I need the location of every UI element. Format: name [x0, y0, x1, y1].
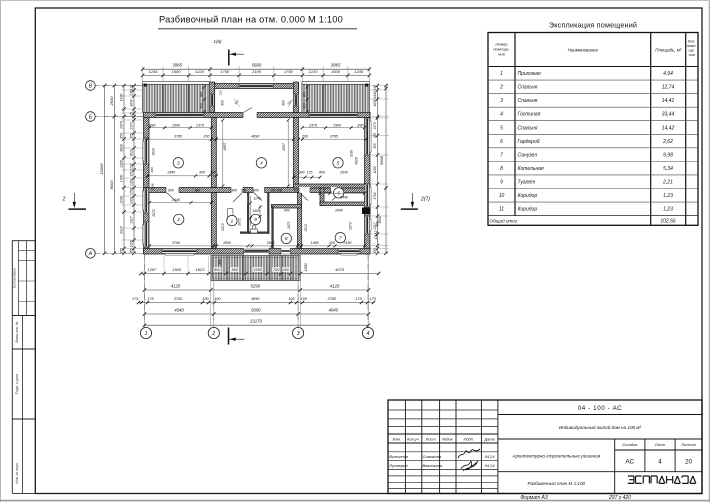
svg-text:3: 3 — [177, 160, 180, 165]
svg-text:Архитектурно-строительные реше: Архитектурно-строительные решения — [511, 454, 600, 459]
svg-text:1375: 1375 — [196, 123, 205, 127]
svg-text:4040: 4040 — [174, 307, 184, 312]
svg-text:3965: 3965 — [331, 63, 341, 68]
svg-text:900: 900 — [303, 103, 307, 109]
svg-text:ния: ния — [689, 53, 695, 57]
svg-text:Взам. инв. №: Взам. инв. № — [15, 321, 19, 342]
svg-text:2373: 2373 — [130, 122, 134, 130]
svg-text:Общий итог: Общий итог — [490, 218, 518, 224]
svg-text:Наименование: Наименование — [568, 48, 599, 53]
svg-text:Проверил: Проверил — [389, 463, 408, 468]
svg-text:14,42: 14,42 — [662, 125, 675, 131]
svg-text:1912: 1912 — [304, 224, 308, 232]
svg-text:1630: 1630 — [130, 99, 134, 106]
svg-text:800: 800 — [319, 170, 325, 174]
svg-text:100: 100 — [288, 297, 295, 301]
svg-text:14,41: 14,41 — [662, 98, 675, 104]
svg-text:355: 355 — [130, 133, 134, 139]
svg-text:Разбивочный план М 1:100: Разбивочный план М 1:100 — [528, 480, 586, 486]
svg-text:1006: 1006 — [151, 183, 155, 190]
svg-text:3765: 3765 — [174, 297, 183, 301]
svg-text:100: 100 — [214, 297, 221, 301]
svg-text:1585: 1585 — [253, 267, 263, 272]
svg-text:Листов: Листов — [680, 442, 696, 447]
svg-text:13170: 13170 — [250, 319, 263, 324]
svg-text:900: 900 — [231, 267, 238, 272]
svg-text:Изм.: Изм. — [393, 436, 401, 441]
svg-text:900: 900 — [282, 100, 286, 106]
svg-text:Дата: Дата — [483, 436, 495, 441]
svg-text:1700: 1700 — [373, 192, 377, 199]
svg-text:1485: 1485 — [311, 241, 319, 245]
svg-text:9: 9 — [254, 217, 257, 222]
svg-text:4675: 4675 — [335, 267, 345, 272]
svg-text:Экспликация помещений: Экспликация помещений — [549, 21, 637, 30]
svg-text:2100: 2100 — [251, 69, 262, 74]
svg-text:900: 900 — [200, 103, 204, 109]
svg-text:№док.: №док. — [442, 436, 453, 441]
svg-text:900: 900 — [200, 92, 204, 98]
svg-text:890: 890 — [149, 123, 156, 127]
svg-text:800: 800 — [168, 188, 174, 192]
svg-text:2: 2 — [176, 217, 180, 222]
svg-text:3765: 3765 — [174, 135, 183, 139]
svg-text:1430: 1430 — [373, 91, 377, 98]
svg-text:Стадия: Стадия — [622, 442, 638, 447]
svg-text:ния: ния — [498, 52, 505, 57]
svg-text:1200: 1200 — [130, 197, 134, 204]
svg-text:300: 300 — [150, 167, 154, 172]
svg-text:2440: 2440 — [339, 196, 348, 200]
svg-text:поме-: поме- — [687, 44, 698, 48]
svg-text:355: 355 — [373, 248, 377, 254]
svg-text:2940: 2940 — [266, 241, 275, 245]
svg-text:5090: 5090 — [251, 307, 261, 312]
svg-text:650: 650 — [270, 188, 276, 192]
svg-text:600: 600 — [283, 267, 290, 272]
svg-text:Санузел: Санузел — [518, 152, 538, 158]
svg-text:1245: 1245 — [354, 69, 364, 74]
svg-text:9: 9 — [500, 180, 503, 186]
svg-text:100: 100 — [301, 297, 308, 301]
svg-text:2,62: 2,62 — [662, 139, 673, 145]
svg-text:1220: 1220 — [309, 69, 319, 74]
svg-text:1375: 1375 — [309, 123, 318, 127]
svg-text:Коридор: Коридор — [518, 193, 538, 199]
svg-text:4890: 4890 — [251, 135, 260, 139]
svg-text:125: 125 — [307, 170, 313, 174]
svg-text:1500: 1500 — [304, 264, 308, 272]
svg-text:4928: 4928 — [355, 157, 359, 165]
svg-text:10: 10 — [499, 193, 505, 199]
svg-text:Подп.: Подп. — [464, 436, 474, 441]
svg-text:900: 900 — [303, 92, 307, 98]
svg-text:04.24: 04.24 — [485, 463, 496, 468]
svg-text:1220: 1220 — [195, 69, 205, 74]
svg-text:7: 7 — [339, 235, 342, 240]
svg-text:1297: 1297 — [147, 267, 157, 272]
svg-text:2180: 2180 — [343, 241, 352, 245]
svg-text:4120: 4120 — [330, 283, 340, 288]
svg-text:9,98: 9,98 — [663, 152, 673, 158]
svg-text:1: 1 — [145, 331, 148, 337]
svg-text:1320: 1320 — [130, 179, 134, 186]
svg-text:2672: 2672 — [287, 222, 291, 231]
svg-text:2840: 2840 — [334, 209, 343, 213]
svg-text:1140: 1140 — [253, 196, 260, 200]
svg-text:10000: 10000 — [99, 163, 104, 175]
svg-text:1200: 1200 — [373, 166, 377, 173]
svg-text:А: А — [88, 251, 93, 257]
svg-text:Котельная: Котельная — [518, 166, 544, 172]
svg-text:Формат А3: Формат А3 — [520, 495, 548, 501]
svg-text:5968: 5968 — [379, 155, 384, 165]
svg-text:Площадь, м²: Площадь, м² — [655, 48, 682, 53]
svg-text:350: 350 — [241, 188, 247, 192]
svg-text:175: 175 — [147, 297, 154, 301]
svg-text:8: 8 — [500, 166, 503, 172]
svg-text:4: 4 — [260, 160, 263, 165]
svg-text:1500: 1500 — [172, 267, 182, 272]
svg-text:1500: 1500 — [333, 123, 342, 127]
svg-text:175: 175 — [132, 297, 139, 301]
svg-text:3965: 3965 — [173, 63, 183, 68]
svg-text:ще-: ще- — [688, 49, 695, 53]
svg-text:4: 4 — [500, 112, 503, 118]
svg-text:04 - 100 - АС: 04 - 100 - АС — [578, 405, 622, 412]
svg-text:105: 105 — [130, 171, 134, 177]
svg-text:125: 125 — [219, 90, 223, 95]
svg-text:100: 100 — [202, 297, 209, 301]
svg-text:Лист: Лист — [654, 442, 666, 447]
svg-text:3765: 3765 — [330, 135, 339, 139]
svg-text:Гостиная: Гостиная — [518, 112, 541, 118]
svg-text:950: 950 — [214, 267, 221, 272]
svg-text:Кол.: Кол. — [688, 40, 695, 44]
svg-text:Вавликова: Вавликова — [423, 463, 443, 468]
svg-text:1500: 1500 — [172, 69, 182, 74]
svg-text:5,34: 5,34 — [663, 166, 673, 172]
svg-text:800: 800 — [253, 188, 259, 192]
svg-text:900: 900 — [221, 100, 225, 106]
svg-text:1630: 1630 — [120, 94, 124, 102]
svg-text:800: 800 — [277, 188, 283, 192]
svg-text:3: 3 — [500, 98, 503, 104]
svg-text:355: 355 — [130, 248, 134, 254]
svg-text:1200: 1200 — [130, 163, 134, 170]
svg-text:1245: 1245 — [149, 69, 159, 74]
svg-text:1630: 1630 — [373, 99, 377, 106]
svg-text:1700: 1700 — [120, 175, 124, 183]
svg-text:2672: 2672 — [349, 222, 353, 231]
svg-text:3: 3 — [297, 331, 300, 337]
svg-text:20: 20 — [685, 459, 693, 466]
svg-text:4657: 4657 — [223, 142, 227, 151]
svg-text:1200: 1200 — [130, 240, 134, 247]
svg-text:5: 5 — [500, 125, 503, 131]
svg-text:2,21: 2,21 — [662, 180, 673, 186]
svg-text:2317: 2317 — [120, 225, 124, 235]
svg-text:1,23: 1,23 — [663, 193, 673, 199]
svg-text:1700: 1700 — [130, 188, 134, 195]
svg-text:2440: 2440 — [171, 198, 181, 202]
svg-text:630: 630 — [294, 188, 300, 192]
svg-text:Коридор: Коридор — [518, 207, 538, 213]
svg-text:2840: 2840 — [166, 170, 175, 174]
svg-text:102,56: 102,56 — [660, 219, 676, 225]
svg-text:Туалет: Туалет — [518, 180, 536, 186]
svg-text:3020: 3020 — [152, 148, 156, 156]
svg-text:2672: 2672 — [238, 218, 242, 227]
svg-text:5290: 5290 — [251, 283, 261, 288]
svg-text:1942: 1942 — [373, 230, 378, 240]
svg-text:12,74: 12,74 — [662, 85, 675, 91]
svg-text:11: 11 — [499, 207, 504, 213]
svg-text:2930: 2930 — [109, 96, 114, 107]
svg-text:2373: 2373 — [373, 122, 377, 130]
svg-text:2640: 2640 — [339, 170, 348, 174]
svg-text:Кол.уч.: Кол.уч. — [407, 436, 420, 441]
svg-text:3020: 3020 — [350, 150, 354, 158]
svg-text:355: 355 — [373, 143, 377, 149]
svg-text:Подп. и дата: Подп. и дата — [15, 374, 19, 394]
svg-text:Спальня: Спальня — [518, 98, 538, 104]
svg-text:2: 2 — [211, 331, 215, 337]
svg-text:Инв. № подл.: Инв. № подл. — [15, 462, 19, 483]
svg-text:4557: 4557 — [282, 142, 286, 151]
svg-text:Выполнил: Выполнил — [389, 454, 409, 459]
svg-text:300: 300 — [210, 170, 216, 174]
svg-text:4040: 4040 — [329, 307, 339, 312]
svg-text:2: 2 — [62, 196, 66, 202]
svg-text:Спальня: Спальня — [518, 125, 538, 131]
svg-text:33,44: 33,44 — [662, 112, 675, 118]
svg-text:Разбивочный план на отм. 0.000: Разбивочный план на отм. 0.000 М 1:100 — [159, 15, 343, 25]
svg-text:2(7): 2(7) — [420, 196, 430, 202]
svg-text:Прихожая: Прихожая — [518, 71, 542, 77]
svg-text:2317: 2317 — [130, 216, 134, 224]
svg-text:800: 800 — [195, 188, 201, 192]
svg-text:355: 355 — [218, 259, 222, 265]
svg-text:1: 1 — [500, 71, 503, 77]
svg-text:100: 100 — [329, 241, 335, 245]
svg-text:1500: 1500 — [331, 69, 341, 74]
svg-text:8: 8 — [285, 236, 288, 241]
svg-text:6: 6 — [500, 139, 503, 145]
svg-text:3765: 3765 — [327, 297, 336, 301]
svg-text:175: 175 — [370, 297, 377, 301]
svg-text:Лист: Лист — [425, 436, 437, 441]
svg-text:355: 355 — [120, 248, 124, 254]
svg-text:4890: 4890 — [251, 297, 260, 301]
svg-text:Спальня: Спальня — [518, 85, 538, 91]
svg-text:04.24: 04.24 — [485, 454, 496, 459]
svg-text:АС: АС — [625, 459, 634, 466]
svg-text:1750: 1750 — [284, 69, 294, 74]
svg-text:7: 7 — [500, 152, 503, 158]
svg-text:355: 355 — [120, 133, 124, 139]
svg-text:1500: 1500 — [172, 123, 181, 127]
svg-text:5: 5 — [337, 160, 340, 165]
svg-text:1(6): 1(6) — [213, 39, 222, 44]
svg-text:2672: 2672 — [221, 223, 225, 232]
svg-text:3020: 3020 — [130, 149, 134, 156]
svg-text:4: 4 — [367, 331, 370, 337]
svg-text:800: 800 — [284, 209, 290, 213]
svg-text:800: 800 — [199, 170, 205, 174]
svg-text:Гардероб: Гардероб — [518, 139, 540, 145]
svg-text:700: 700 — [273, 267, 280, 272]
svg-text:1608: 1608 — [378, 216, 382, 223]
svg-text:4,94: 4,94 — [663, 71, 673, 77]
svg-text:4: 4 — [658, 459, 662, 466]
svg-text:1200: 1200 — [120, 196, 124, 204]
svg-text:200: 200 — [202, 135, 210, 139]
svg-text:5600: 5600 — [252, 63, 262, 68]
svg-text:2: 2 — [499, 85, 503, 91]
svg-text:2672: 2672 — [152, 209, 156, 218]
svg-text:2373: 2373 — [120, 121, 124, 130]
svg-text:1400: 1400 — [252, 209, 260, 213]
svg-text:3765: 3765 — [172, 241, 180, 245]
svg-text:4120: 4120 — [171, 283, 181, 288]
svg-text:Индивидуальный жилой дом на 10: Индивидуальный жилой дом на 100 м² — [559, 424, 642, 430]
svg-text:1923: 1923 — [195, 267, 205, 272]
svg-text:200: 200 — [301, 135, 309, 139]
svg-text:297 х 420: 297 х 420 — [608, 495, 631, 501]
svg-text:Симакова: Симакова — [423, 454, 442, 459]
svg-text:Согласовано: Согласовано — [13, 268, 17, 289]
svg-text:800: 800 — [232, 188, 238, 192]
svg-text:690: 690 — [299, 170, 305, 174]
svg-text:1,23: 1,23 — [663, 207, 673, 213]
svg-text:1: 1 — [231, 218, 234, 223]
svg-text:1750: 1750 — [220, 69, 230, 74]
svg-text:890: 890 — [357, 123, 364, 127]
svg-text:236: 236 — [130, 90, 134, 97]
svg-text:8000: 8000 — [109, 180, 114, 190]
svg-text:1850: 1850 — [223, 241, 231, 245]
svg-text:175: 175 — [355, 297, 362, 301]
